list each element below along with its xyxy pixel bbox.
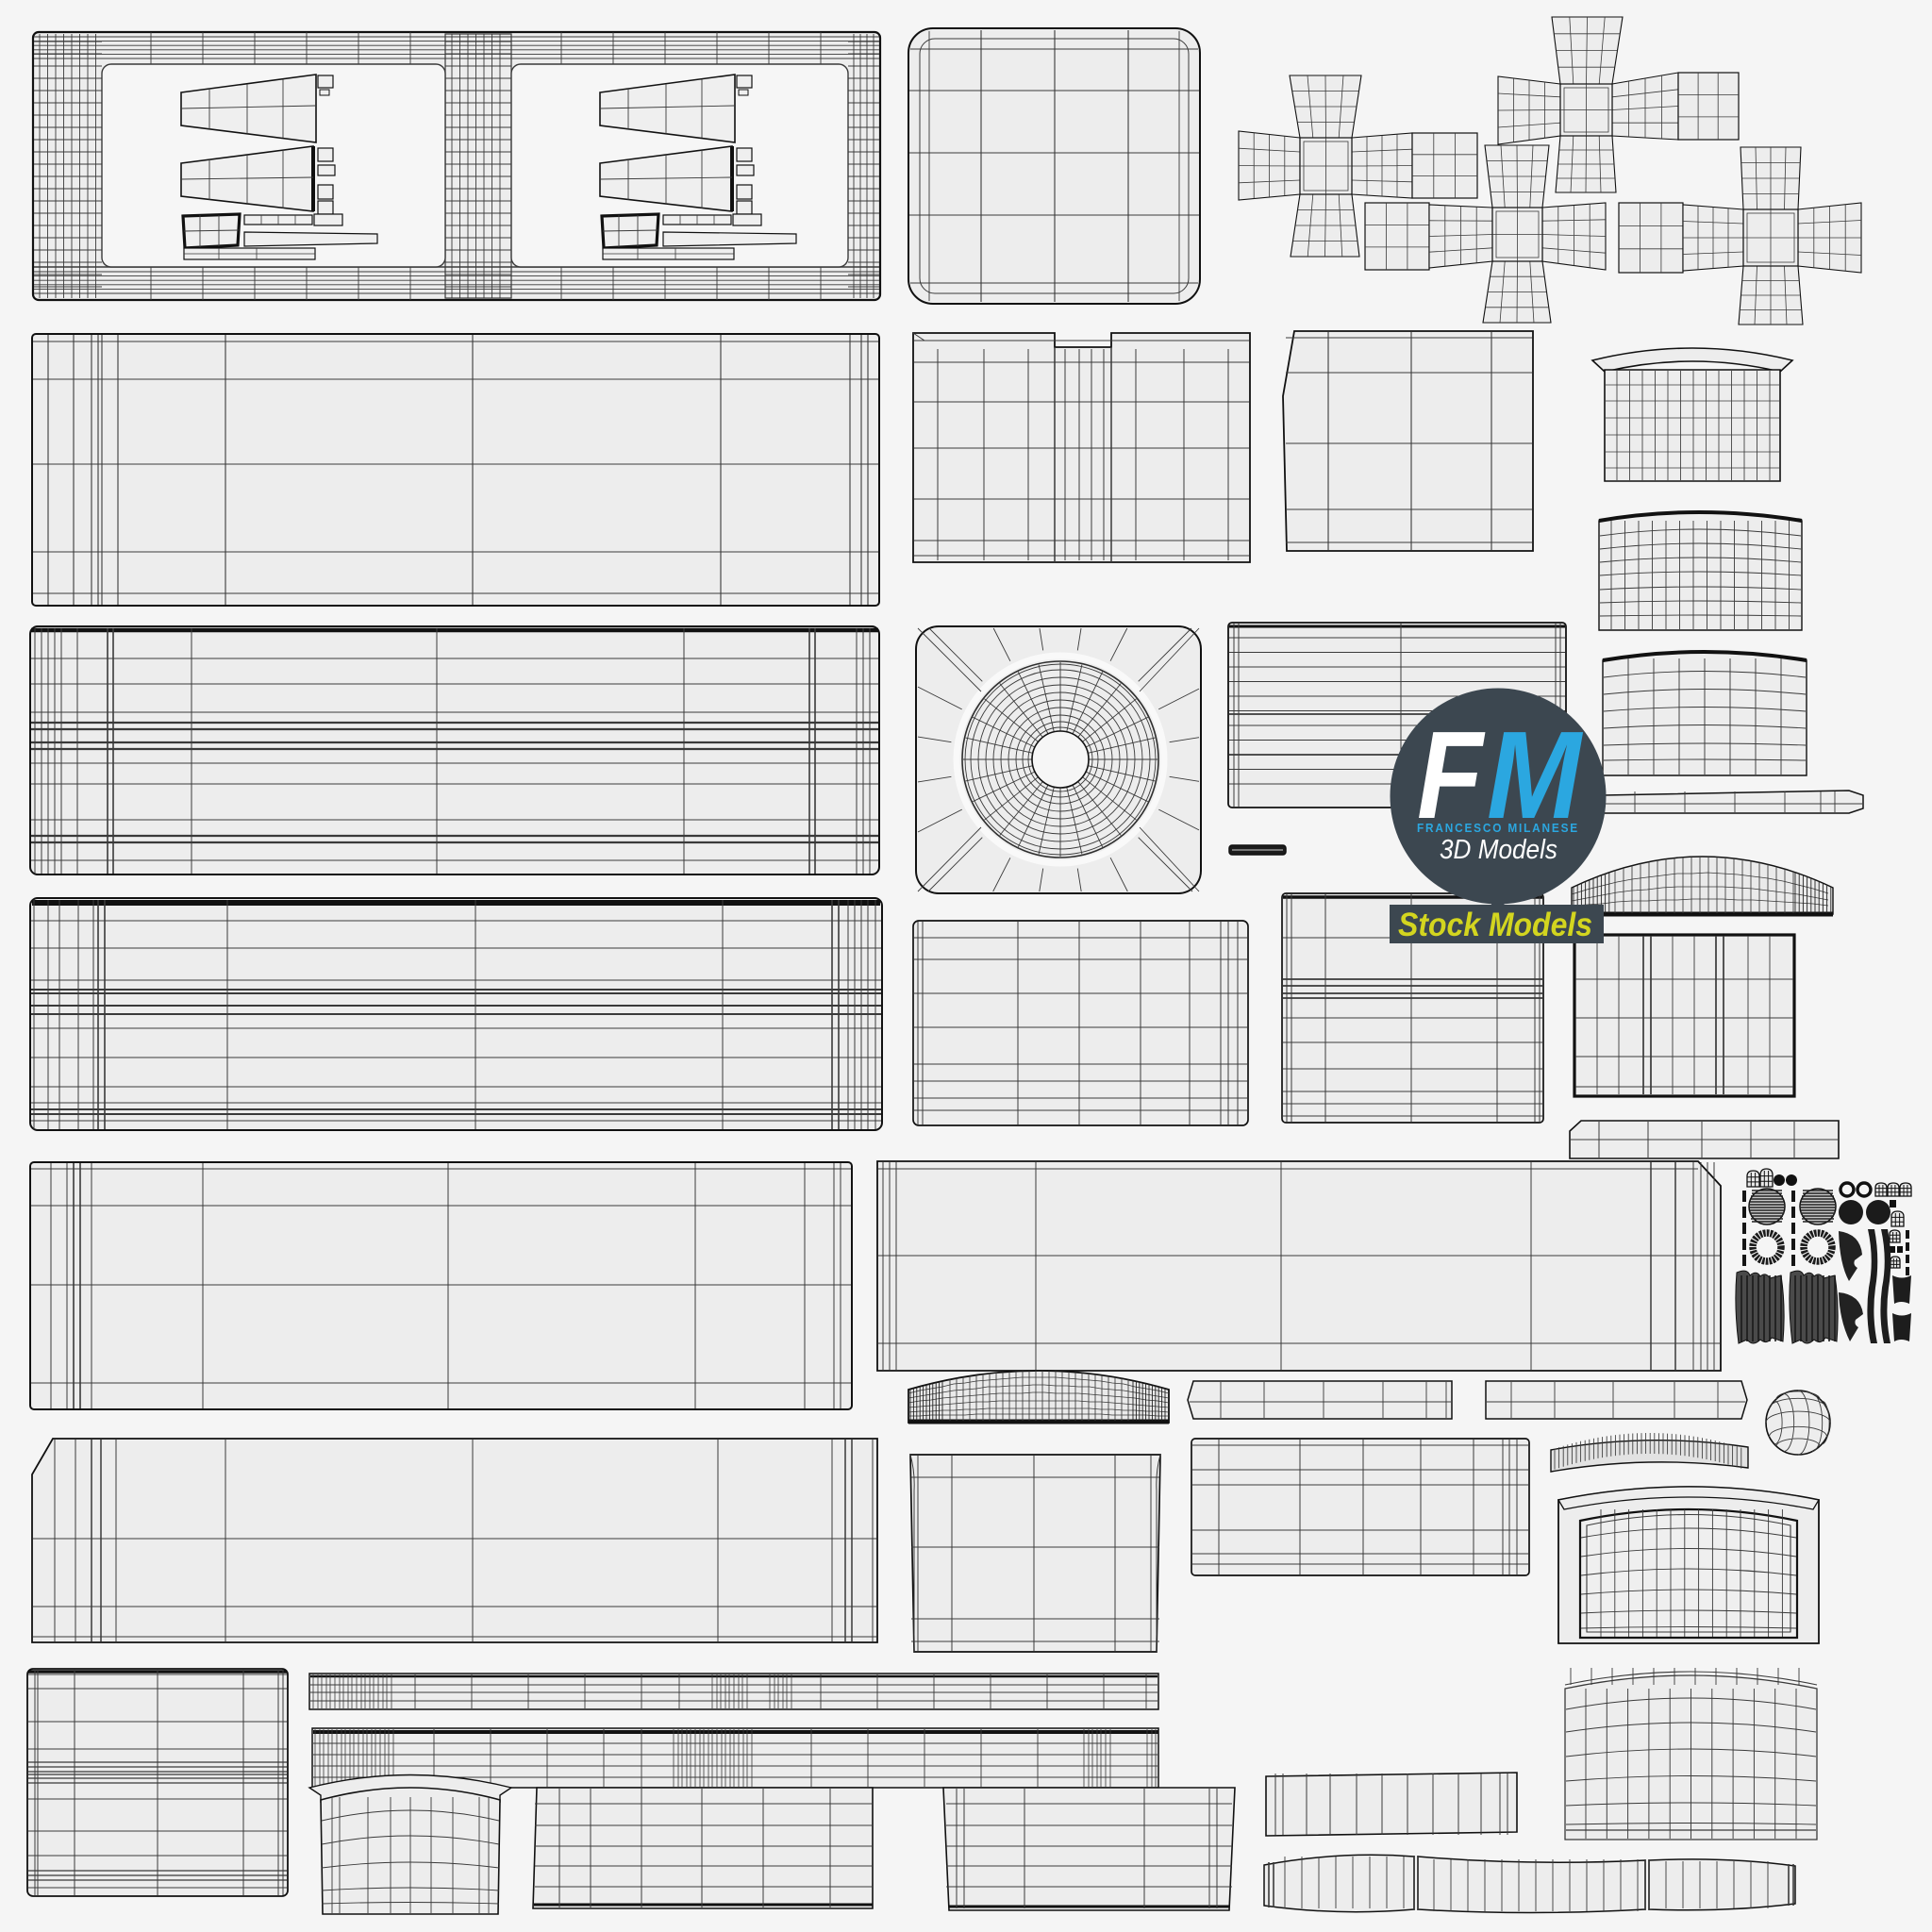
svg-text:FRANCESCO MILANESE: FRANCESCO MILANESE <box>1417 821 1579 835</box>
svg-text:Stock Models: Stock Models <box>1398 907 1592 943</box>
svg-text:3D Models: 3D Models <box>1440 835 1557 865</box>
